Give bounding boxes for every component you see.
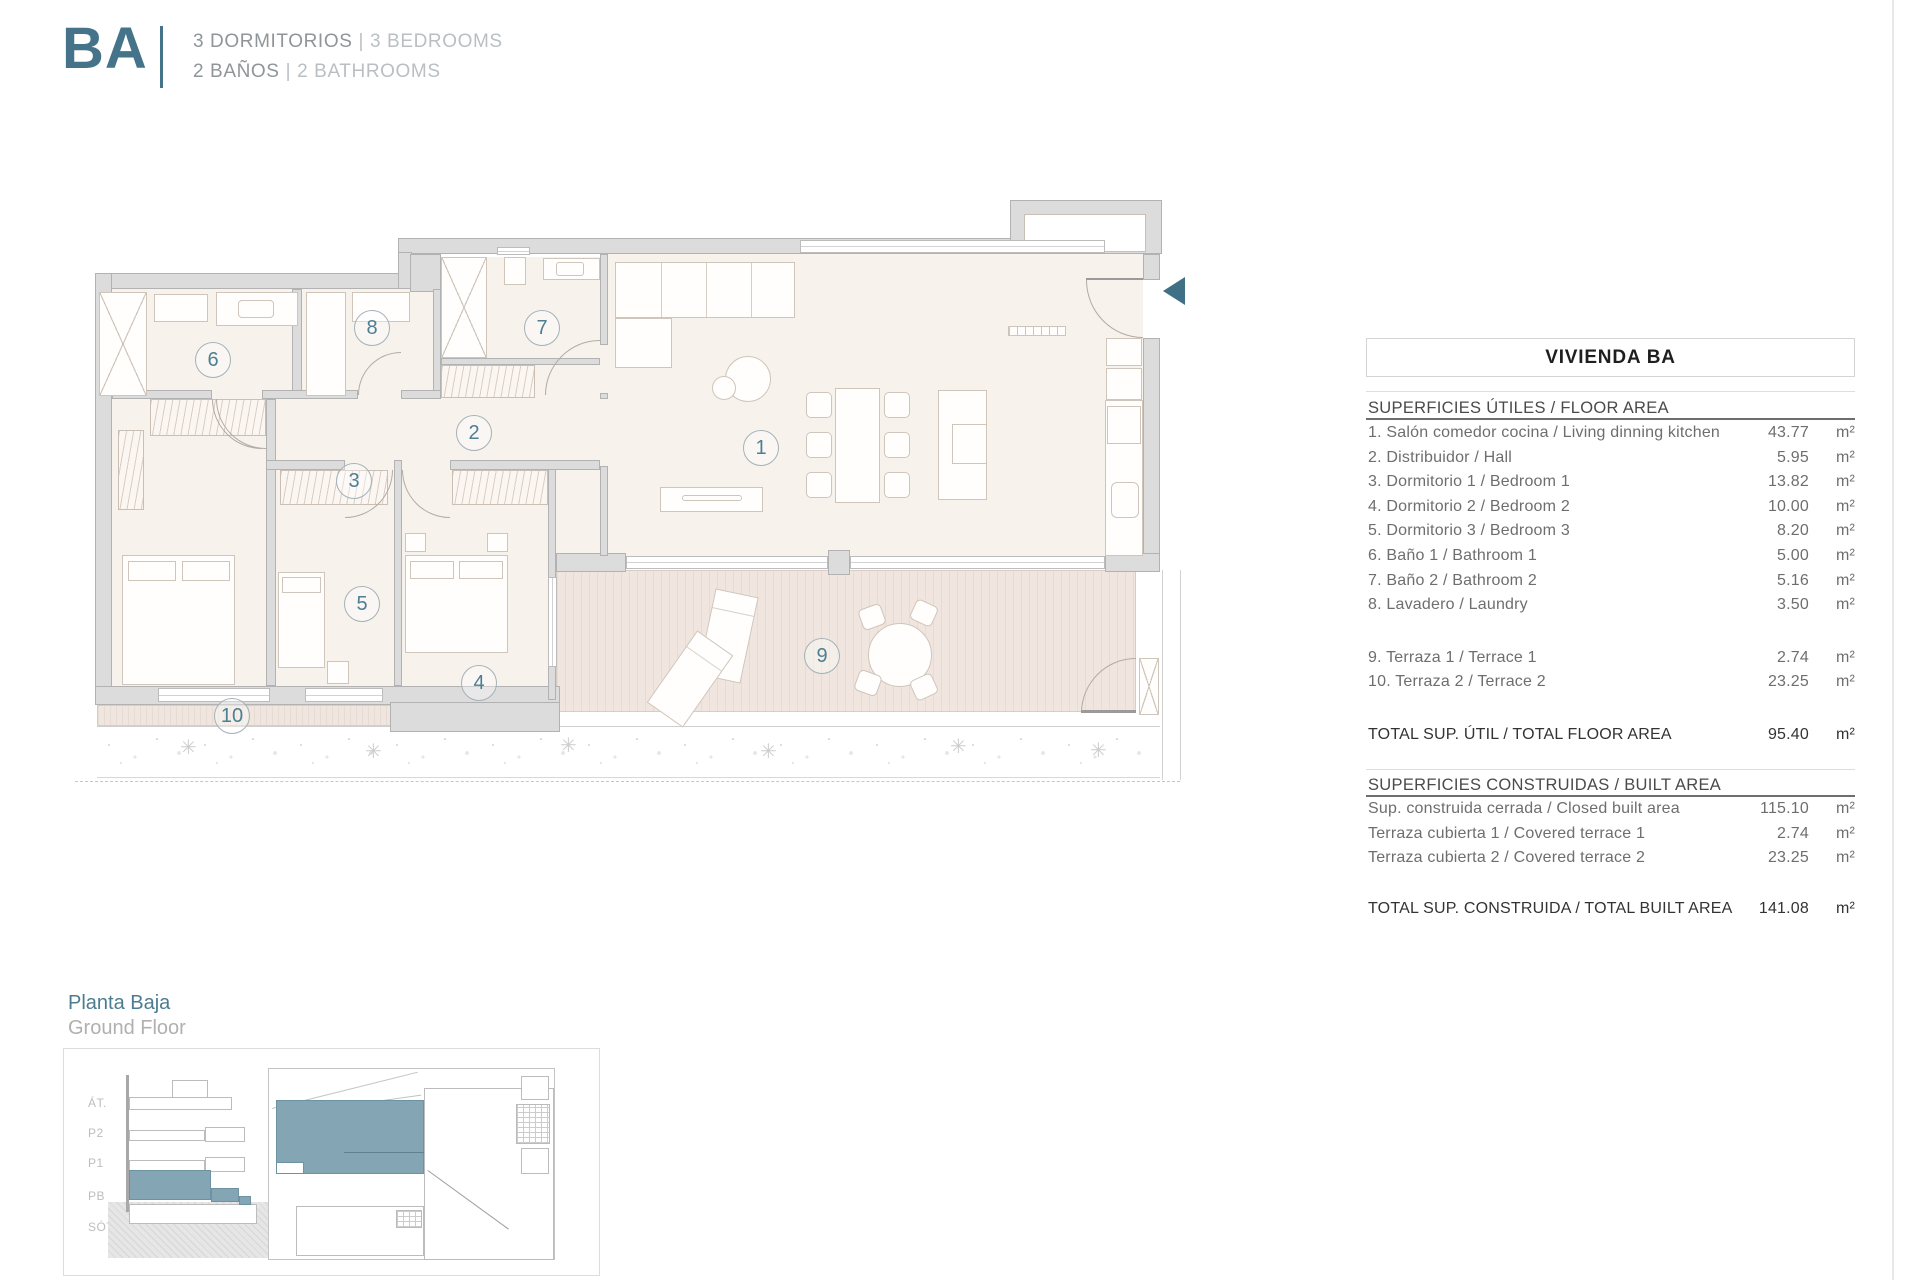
table-row: Terraza cubierta 1 / Covered terrace 12.…	[1368, 825, 1855, 850]
laundry-cabinet	[306, 292, 346, 396]
row-unit: m²	[1809, 498, 1855, 516]
terrace-1	[556, 570, 1136, 712]
wall	[410, 254, 441, 292]
spacer	[1368, 698, 1855, 726]
row-value: 5.95	[1735, 449, 1809, 467]
row-label: 8. Lavadero / Laundry	[1368, 596, 1735, 614]
wall	[1143, 338, 1160, 568]
table-row: 2. Distribuidor / Hall5.95m²	[1368, 449, 1855, 474]
room-number-label: 3	[348, 470, 359, 493]
room-number-bath2: 7	[524, 310, 560, 346]
room-number-label: 7	[536, 317, 547, 340]
table-row: Sup. construida cerrada / Closed built a…	[1368, 800, 1855, 825]
section-highlight-step	[211, 1188, 239, 1202]
built-area-rows: Sup. construida cerrada / Closed built a…	[1368, 800, 1855, 924]
row-value: 95.40	[1735, 726, 1809, 744]
wall-pillar	[828, 550, 850, 575]
row-label: 7. Baño 2 / Bathroom 2	[1368, 572, 1735, 590]
useful-area-rows: 1. Salón comedor cocina / Living dinning…	[1368, 424, 1855, 751]
window-slider	[850, 556, 1105, 569]
table-row: 3. Dormitorio 1 / Bedroom 113.82m²	[1368, 473, 1855, 498]
row-unit: m²	[1809, 572, 1855, 590]
pillow	[182, 561, 230, 581]
chair	[884, 432, 910, 458]
header-bedrooms: 3 DORMITORIOS|3 BEDROOMS	[193, 31, 503, 53]
pillow	[410, 561, 454, 579]
side-gate	[1139, 658, 1159, 715]
door-leaf	[1081, 710, 1136, 713]
room-number-terrace1: 9	[804, 638, 840, 674]
side-table	[712, 376, 736, 400]
partition	[266, 460, 345, 470]
fridge	[1106, 338, 1142, 366]
divider	[1366, 418, 1855, 420]
table-row: 7. Baño 2 / Bathroom 25.16m²	[1368, 572, 1855, 597]
row-label: 2. Distribuidor / Hall	[1368, 449, 1735, 467]
bathrooms-es: 2 BAÑOS	[193, 61, 280, 82]
row-value: 2.74	[1735, 649, 1809, 667]
row-unit: m²	[1809, 900, 1855, 918]
separator: |	[280, 61, 298, 82]
chair	[884, 392, 910, 418]
room-number-hall: 2	[456, 415, 492, 451]
plant-icon: ✳	[560, 736, 577, 756]
boundary-line	[1180, 570, 1181, 780]
total-built-area-row: TOTAL SUP. CONSTRUIDA / TOTAL BUILT AREA…	[1368, 900, 1855, 925]
keyplan-unit-notch	[276, 1162, 304, 1174]
table-title: VIVIENDA BA	[1366, 338, 1855, 377]
row-value: 5.00	[1735, 547, 1809, 565]
row-label: Terraza cubierta 2 / Covered terrace 2	[1368, 849, 1735, 867]
divider	[1366, 391, 1855, 392]
row-unit: m²	[1809, 825, 1855, 843]
row-unit: m²	[1809, 596, 1855, 614]
sofa	[615, 262, 795, 318]
page-edge-line	[1892, 0, 1894, 1280]
room-number-bath1: 6	[195, 342, 231, 378]
room-number-laundry: 8	[354, 310, 390, 346]
entrance-arrow-icon	[1163, 277, 1185, 305]
divider	[1366, 769, 1855, 770]
level-label: ÁT.	[88, 1096, 107, 1110]
plant-icon: ✳	[760, 742, 777, 762]
pillow	[128, 561, 176, 581]
row-label: 5. Dormitorio 3 / Bedroom 3	[1368, 522, 1735, 540]
window-slider	[626, 556, 828, 569]
row-value: 115.10	[1735, 800, 1809, 818]
row-label: Terraza cubierta 1 / Covered terrace 1	[1368, 825, 1735, 843]
chair	[806, 432, 832, 458]
partition	[600, 466, 608, 556]
bedrooms-es: 3 DORMITORIOS	[193, 31, 352, 52]
row-value: 23.25	[1735, 673, 1809, 691]
nightstand	[327, 661, 349, 684]
row-label: 1. Salón comedor cocina / Living dinning…	[1368, 424, 1735, 442]
row-value: 23.25	[1735, 849, 1809, 867]
table-row: Terraza cubierta 2 / Covered terrace 223…	[1368, 849, 1855, 874]
row-unit: m²	[1809, 522, 1855, 540]
room-number-bedroom1: 3	[336, 463, 372, 499]
table-row: 9. Terraza 1 / Terrace 12.74m²	[1368, 649, 1855, 674]
room-number-label: 9	[816, 645, 827, 668]
chair	[806, 392, 832, 418]
level-label: P1	[88, 1156, 104, 1170]
row-value: 10.00	[1735, 498, 1809, 516]
row-unit: m²	[1809, 424, 1855, 442]
row-unit: m²	[1809, 449, 1855, 467]
room-number-label: 10	[221, 705, 243, 728]
table-row: 10. Terraza 2 / Terrace 223.25m²	[1368, 673, 1855, 698]
plant-icon: ✳	[950, 737, 967, 757]
bathrooms-en: 2 BATHROOMS	[297, 61, 441, 82]
partition	[433, 289, 441, 399]
wardrobe	[118, 430, 144, 510]
row-label: 3. Dormitorio 1 / Bedroom 1	[1368, 473, 1735, 491]
wardrobe	[452, 470, 548, 505]
sink	[1111, 482, 1139, 518]
dining-table	[835, 388, 880, 503]
window	[158, 688, 270, 702]
tv	[682, 495, 742, 501]
table-row: 5. Dormitorio 3 / Bedroom 38.20m²	[1368, 522, 1855, 547]
partition	[401, 390, 441, 399]
bedrooms-en: 3 BEDROOMS	[370, 31, 503, 52]
shower	[99, 292, 147, 396]
boundary-line	[1162, 570, 1163, 780]
section-slab	[129, 1130, 205, 1141]
row-label: 4. Dormitorio 2 / Bedroom 2	[1368, 498, 1735, 516]
toilet	[154, 294, 208, 322]
table-row: 8. Lavadero / Laundry3.50m²	[1368, 596, 1855, 621]
section-highlight-pb	[129, 1170, 211, 1200]
window	[497, 247, 530, 255]
row-label: Sup. construida cerrada / Closed built a…	[1368, 800, 1735, 818]
section-highlight-step	[239, 1196, 251, 1205]
section-balcony	[205, 1127, 245, 1142]
divider	[1366, 795, 1855, 797]
floor-name-en: Ground Floor	[68, 1017, 186, 1040]
nightstand	[487, 533, 508, 552]
partition	[600, 393, 608, 399]
shower	[441, 257, 487, 358]
level-label: PB	[88, 1189, 105, 1203]
window	[800, 240, 1105, 253]
total-floor-area-row: TOTAL SUP. ÚTIL / TOTAL FLOOR AREA95.40m…	[1368, 726, 1855, 751]
row-value: 141.08	[1735, 900, 1809, 918]
keyplan-stairs	[516, 1104, 550, 1144]
plant-icon: ✳	[180, 738, 197, 758]
room-number-label: 2	[468, 422, 479, 445]
table-row: 1. Salón comedor cocina / Living dinning…	[1368, 424, 1855, 449]
row-unit: m²	[1809, 473, 1855, 491]
row-value: 8.20	[1735, 522, 1809, 540]
section-slab	[129, 1097, 232, 1110]
room-number-label: 1	[755, 437, 766, 460]
spacer	[1368, 621, 1855, 649]
section-balcony	[205, 1157, 245, 1172]
washbasin	[556, 262, 584, 276]
section-roof-box	[172, 1080, 208, 1098]
table-row: 4. Dormitorio 2 / Bedroom 210.00m²	[1368, 498, 1855, 523]
nightstand	[405, 533, 426, 552]
keyplan-stairs	[396, 1210, 422, 1228]
sofa-chaise	[615, 318, 672, 368]
wall	[390, 702, 560, 732]
room-number-terrace2: 10	[214, 698, 250, 734]
partition	[394, 460, 402, 686]
header-divider	[160, 26, 163, 88]
row-unit: m²	[1809, 849, 1855, 867]
floor-name-es: Planta Baja	[68, 992, 170, 1015]
keyplan-elevator	[521, 1148, 549, 1174]
row-unit: m²	[1809, 800, 1855, 818]
row-unit: m²	[1809, 726, 1855, 744]
row-label: 9. Terraza 1 / Terrace 1	[1368, 649, 1735, 667]
cooktop	[952, 424, 987, 464]
pillow	[459, 561, 503, 579]
room-number-label: 6	[207, 349, 218, 372]
room-number-bedroom2: 4	[461, 665, 497, 701]
page: { "header": { "unit_code": "BA", "separa…	[0, 0, 1920, 1280]
row-unit: m²	[1809, 547, 1855, 565]
row-label: 6. Baño 1 / Bathroom 1	[1368, 547, 1735, 565]
partition	[600, 254, 608, 345]
separator: |	[352, 31, 370, 52]
row-label: 10. Terraza 2 / Terrace 2	[1368, 673, 1735, 691]
built-area-header: SUPERFICIES CONSTRUIDAS / BUILT AREA	[1368, 776, 1721, 795]
row-value: 3.50	[1735, 596, 1809, 614]
room-number-bedroom3: 5	[344, 586, 380, 622]
partition	[450, 460, 600, 470]
appliance	[1107, 406, 1141, 444]
washbasin	[238, 300, 274, 318]
oven-column	[1106, 368, 1142, 400]
chair	[806, 472, 832, 498]
keyplan-elevator	[521, 1076, 549, 1100]
chair	[884, 472, 910, 498]
wardrobe	[441, 365, 535, 398]
row-value: 5.16	[1735, 572, 1809, 590]
row-unit: m²	[1809, 649, 1855, 667]
row-label: TOTAL SUP. CONSTRUIDA / TOTAL BUILT AREA	[1368, 900, 1735, 918]
room-number-label: 5	[356, 593, 367, 616]
plant-icon: ✳	[365, 742, 382, 762]
row-value: 13.82	[1735, 473, 1809, 491]
room-number-label: 4	[473, 672, 484, 695]
room-number-label: 8	[366, 317, 377, 340]
table-row: 6. Baño 1 / Bathroom 15.00m²	[1368, 547, 1855, 572]
section-basement	[129, 1204, 257, 1224]
spacer	[1368, 874, 1855, 900]
door-leaf	[1086, 278, 1143, 280]
room-number-living: 1	[743, 430, 779, 466]
unit-code: BA	[62, 20, 148, 78]
level-label: P2	[88, 1126, 104, 1140]
header-bathrooms: 2 BAÑOS|2 BATHROOMS	[193, 61, 441, 83]
row-label: TOTAL SUP. ÚTIL / TOTAL FLOOR AREA	[1368, 726, 1735, 744]
site-boundary-dashed	[75, 781, 1180, 782]
useful-area-header: SUPERFICIES ÚTILES / FLOOR AREA	[1368, 399, 1669, 418]
window	[548, 577, 557, 667]
row-unit: m²	[1809, 673, 1855, 691]
toilet	[504, 257, 526, 285]
window	[305, 688, 383, 702]
keyplan-unit-line	[344, 1152, 424, 1153]
plant-icon: ✳	[1090, 741, 1107, 761]
kitchen-tiles	[1008, 326, 1066, 336]
wall	[95, 273, 411, 289]
pillow	[282, 577, 321, 593]
partition	[266, 399, 276, 686]
row-value: 43.77	[1735, 424, 1809, 442]
row-value: 2.74	[1735, 825, 1809, 843]
wall	[1143, 254, 1160, 280]
wall	[556, 553, 626, 572]
garden-strip	[97, 726, 1160, 778]
